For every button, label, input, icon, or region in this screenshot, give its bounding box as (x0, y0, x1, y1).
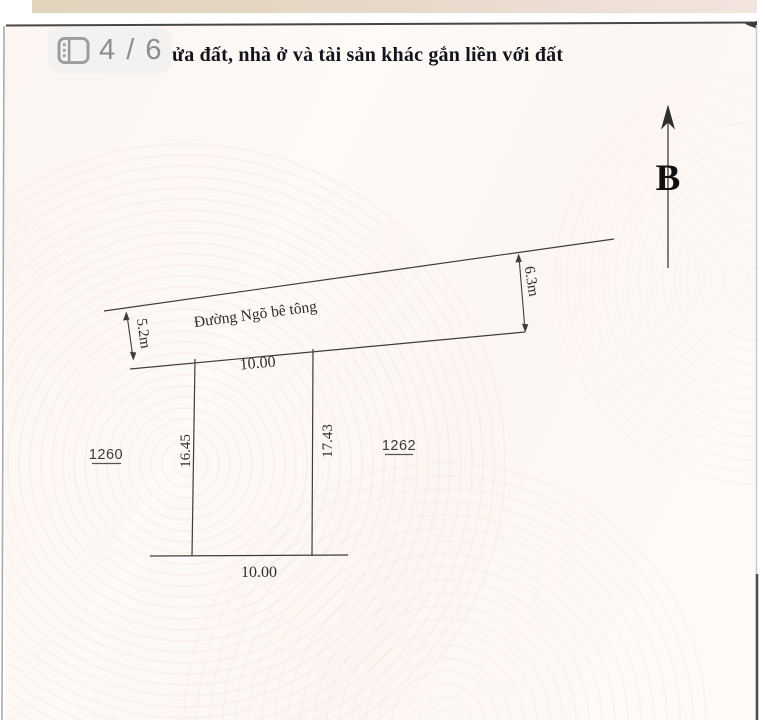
dim-side-left: 16.45 (178, 434, 194, 468)
arrowhead-icon (123, 312, 129, 321)
dim-frontage-bottom: 10.00 (241, 564, 277, 581)
cadastral-diagram: B 5.2m 6.3m Đường Ngõ bê tông 10.00 16.4… (0, 0, 765, 720)
plot-right-boundary (312, 349, 313, 556)
page-top-edge (6, 23, 753, 26)
page-left-edge (2, 26, 4, 720)
adjacent-plot-number-left: 1260 (89, 447, 123, 463)
compass-north-label: B (656, 158, 681, 199)
dim-line-road-left (127, 315, 133, 358)
dim-side-right: 17.43 (320, 424, 336, 458)
page-count-label: 4 / 6 (99, 34, 163, 67)
plot-bottom-boundary (150, 555, 348, 556)
viewer-screen: ửa đất, nhà ở và tài sản khác gắn liền v… (0, 0, 765, 720)
dim-frontage-top: 10.00 (239, 353, 276, 373)
road-south-boundary (130, 332, 525, 369)
road-name-label: Đường Ngõ bê tông (193, 298, 318, 331)
arrowhead-icon (130, 352, 136, 361)
thumbnails-icon (57, 36, 90, 65)
arrowhead-icon (515, 254, 521, 263)
dim-road-width-right: 6.3m (521, 265, 542, 298)
adjacent-plot-number-right: 1262 (382, 438, 416, 454)
dim-road-width-left: 5.2m (133, 317, 153, 350)
arrowhead-icon (522, 324, 528, 333)
page-indicator-pill[interactable]: 4 / 6 (48, 27, 172, 73)
